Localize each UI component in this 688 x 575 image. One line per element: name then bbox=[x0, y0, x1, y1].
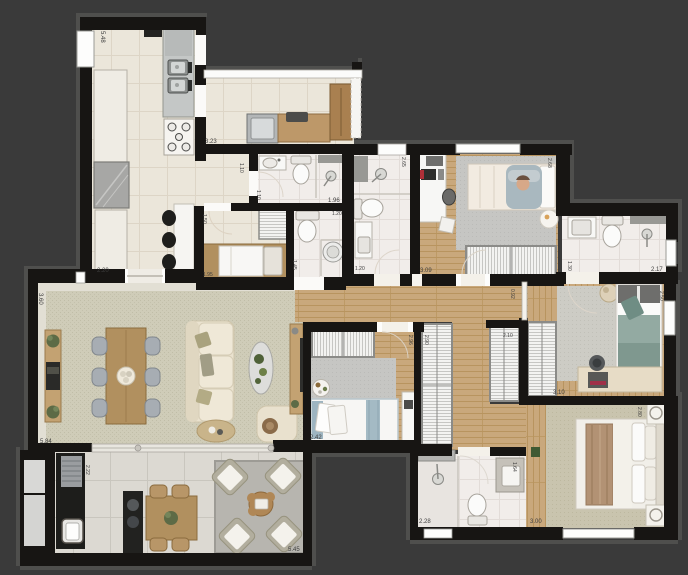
svg-text:1.96: 1.96 bbox=[328, 198, 340, 204]
svg-text:0.92: 0.92 bbox=[509, 289, 515, 299]
svg-text:3.09: 3.09 bbox=[420, 268, 432, 274]
svg-text:3.23: 3.23 bbox=[205, 139, 217, 145]
svg-text:1.50: 1.50 bbox=[201, 214, 207, 224]
svg-text:1.20: 1.20 bbox=[332, 211, 342, 217]
svg-text:2.10: 2.10 bbox=[503, 333, 513, 339]
svg-text:1.30: 1.30 bbox=[566, 261, 572, 271]
svg-text:1.10: 1.10 bbox=[238, 163, 244, 173]
svg-text:3.00: 3.00 bbox=[530, 519, 542, 525]
svg-text:2.20: 2.20 bbox=[97, 268, 109, 274]
svg-text:2.80: 2.80 bbox=[636, 407, 642, 417]
svg-text:2.90: 2.90 bbox=[423, 335, 429, 345]
svg-text:5.84: 5.84 bbox=[40, 439, 52, 445]
svg-text:2.28: 2.28 bbox=[419, 519, 431, 525]
svg-text:1.64: 1.64 bbox=[511, 462, 517, 472]
svg-text:2.42: 2.42 bbox=[310, 435, 322, 441]
svg-text:5.45: 5.45 bbox=[288, 547, 300, 553]
svg-text:2.50: 2.50 bbox=[658, 291, 664, 301]
svg-text:2.96: 2.96 bbox=[407, 335, 413, 345]
svg-text:2.68: 2.68 bbox=[546, 158, 552, 168]
svg-text:1.20: 1.20 bbox=[355, 266, 365, 272]
svg-text:2.65: 2.65 bbox=[400, 157, 406, 167]
svg-text:1.95: 1.95 bbox=[203, 272, 213, 278]
svg-text:2.17: 2.17 bbox=[651, 267, 663, 273]
svg-text:1.45: 1.45 bbox=[291, 260, 297, 270]
svg-text:2.22: 2.22 bbox=[84, 465, 90, 475]
svg-text:3.10: 3.10 bbox=[553, 390, 565, 396]
svg-text:1.10: 1.10 bbox=[255, 190, 261, 200]
svg-text:5.48: 5.48 bbox=[99, 31, 105, 43]
svg-text:3.60: 3.60 bbox=[37, 293, 43, 305]
